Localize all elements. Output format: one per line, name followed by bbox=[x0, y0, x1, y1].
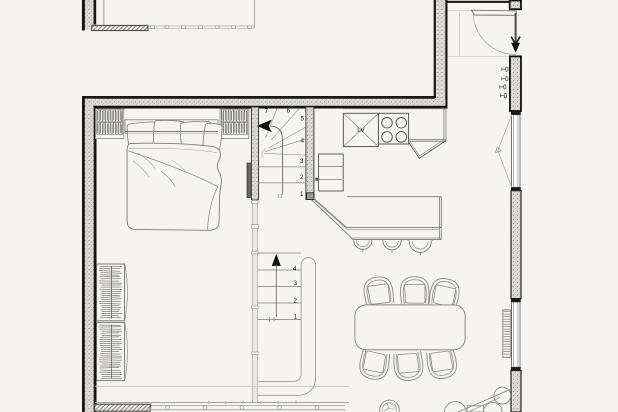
svg-text:5: 5 bbox=[300, 116, 304, 123]
svg-text:4: 4 bbox=[293, 265, 297, 272]
svg-text:7: 7 bbox=[264, 108, 268, 115]
svg-text:2: 2 bbox=[293, 297, 297, 304]
svg-text:LV: LV bbox=[357, 127, 365, 134]
svg-text:6: 6 bbox=[287, 107, 291, 114]
svg-text:3: 3 bbox=[300, 158, 304, 165]
svg-text:3: 3 bbox=[293, 280, 297, 287]
svg-text:2: 2 bbox=[300, 174, 304, 181]
svg-text:4: 4 bbox=[300, 138, 304, 145]
svg-text:1: 1 bbox=[293, 313, 297, 320]
svg-text:1: 1 bbox=[300, 191, 304, 198]
